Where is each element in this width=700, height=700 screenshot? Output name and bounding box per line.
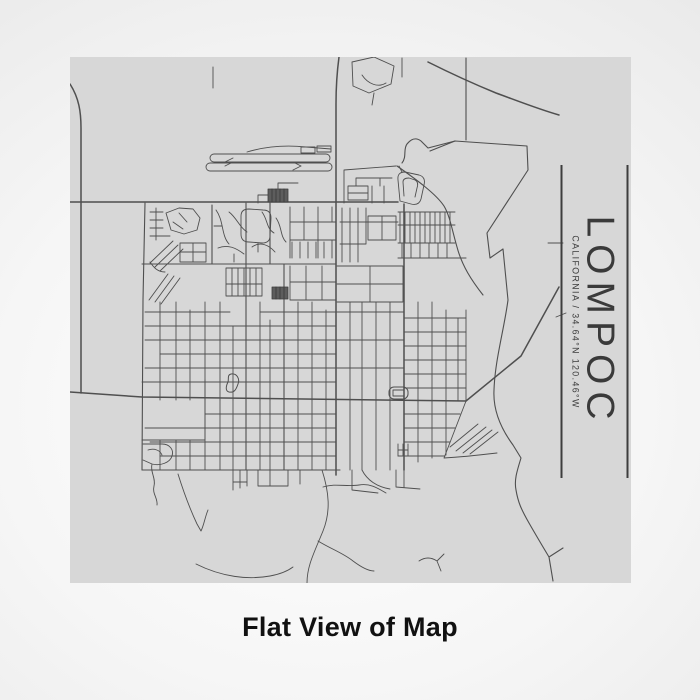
product-image: LOMPOC CALIFORNIA / 34.64°N 120.46°W	[0, 0, 700, 700]
map-background-square	[70, 57, 631, 583]
map-title: LOMPOC	[581, 215, 620, 426]
image-caption: Flat View of Map	[0, 612, 700, 643]
map-subtitle: CALIFORNIA / 34.64°N 120.46°W	[571, 235, 580, 408]
